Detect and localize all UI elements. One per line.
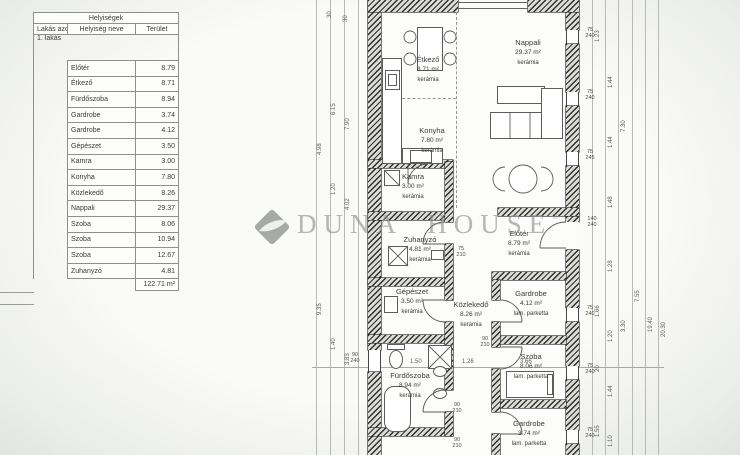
room-label-etkezo: Étkező8.71 m²kerámia: [398, 55, 458, 85]
dim-label: 19.40: [648, 317, 654, 332]
room-label-gardrobe-1: Gardrobe4.12 m²lam. parketta: [501, 289, 561, 319]
dim-label: 4.98: [317, 143, 323, 155]
dim-label: 1.20: [331, 183, 337, 195]
dim-label: 3.66: [520, 359, 532, 365]
room-label-kamra: Kamra3.00 m²kerámia: [383, 172, 443, 202]
dim-label: 6.15: [331, 103, 337, 115]
dunahouse-logo-icon: [249, 204, 295, 250]
room-label-gepeszet: Gépészet3.50 m²kerámia: [382, 287, 442, 317]
room-label-nappali: Nappali29.37 m²kerámia: [498, 38, 558, 68]
opening-label: 90210: [448, 402, 466, 414]
floorplan-sheet: Helyiségek Lakás azonosítója Helyiség ne…: [0, 0, 740, 455]
dim-label: 1.44: [608, 385, 614, 397]
room-label-konyha: Konyha7.80 m²kerámia: [402, 126, 462, 156]
dim-label: 30: [343, 15, 349, 22]
opening-label: 75245: [581, 149, 599, 161]
dim-label: 7.90: [345, 118, 351, 130]
room-label-szoba: Szoba8.06 m²lam. parketta: [501, 352, 561, 382]
dim-label: 1.44: [608, 136, 614, 148]
dim-label: 1.66: [595, 305, 601, 317]
dim-label: 1.23: [595, 30, 601, 42]
opening-label: 75210: [452, 246, 470, 258]
room-label-gardrobe-2: Gardrobe3.74 m²lam. parketta: [499, 419, 559, 449]
dim-label: 3.30: [621, 320, 627, 332]
registered-mark: ®: [552, 211, 559, 221]
dim-label: 1.44: [608, 76, 614, 88]
dim-label: 1.50: [410, 359, 422, 365]
dim-label: 7.55: [635, 290, 641, 302]
opening-label: 75240: [581, 89, 599, 101]
dim-label: 1.55: [595, 425, 601, 437]
opening-label: 90210: [448, 437, 466, 449]
dim-label: 1.20: [608, 330, 614, 342]
dim-label: 1.28: [608, 260, 614, 272]
dim-label: 30: [327, 11, 333, 18]
room-label-kozlekedo: Közlekedő8.26 m²kerámia: [441, 300, 501, 330]
dim-label: 20.30: [661, 322, 667, 337]
dim-label: 1.10: [608, 435, 614, 447]
dim-label: 9.35: [317, 303, 323, 315]
dim-label: 20: [595, 365, 601, 372]
watermark-brand: DUNA HOUSE®: [297, 209, 559, 240]
dim-label: 3.83: [345, 353, 351, 365]
opening-label: 140240: [583, 216, 601, 228]
dim-label: 1.40: [331, 338, 337, 350]
room-label-furdoszoba: Fürdőszoba8.94 m²kerámia: [380, 371, 440, 401]
dim-label: 1.26: [462, 359, 474, 365]
dim-label: 1.48: [608, 196, 614, 208]
opening-label: 90210: [476, 336, 494, 348]
dim-label: 7.30: [621, 120, 627, 132]
